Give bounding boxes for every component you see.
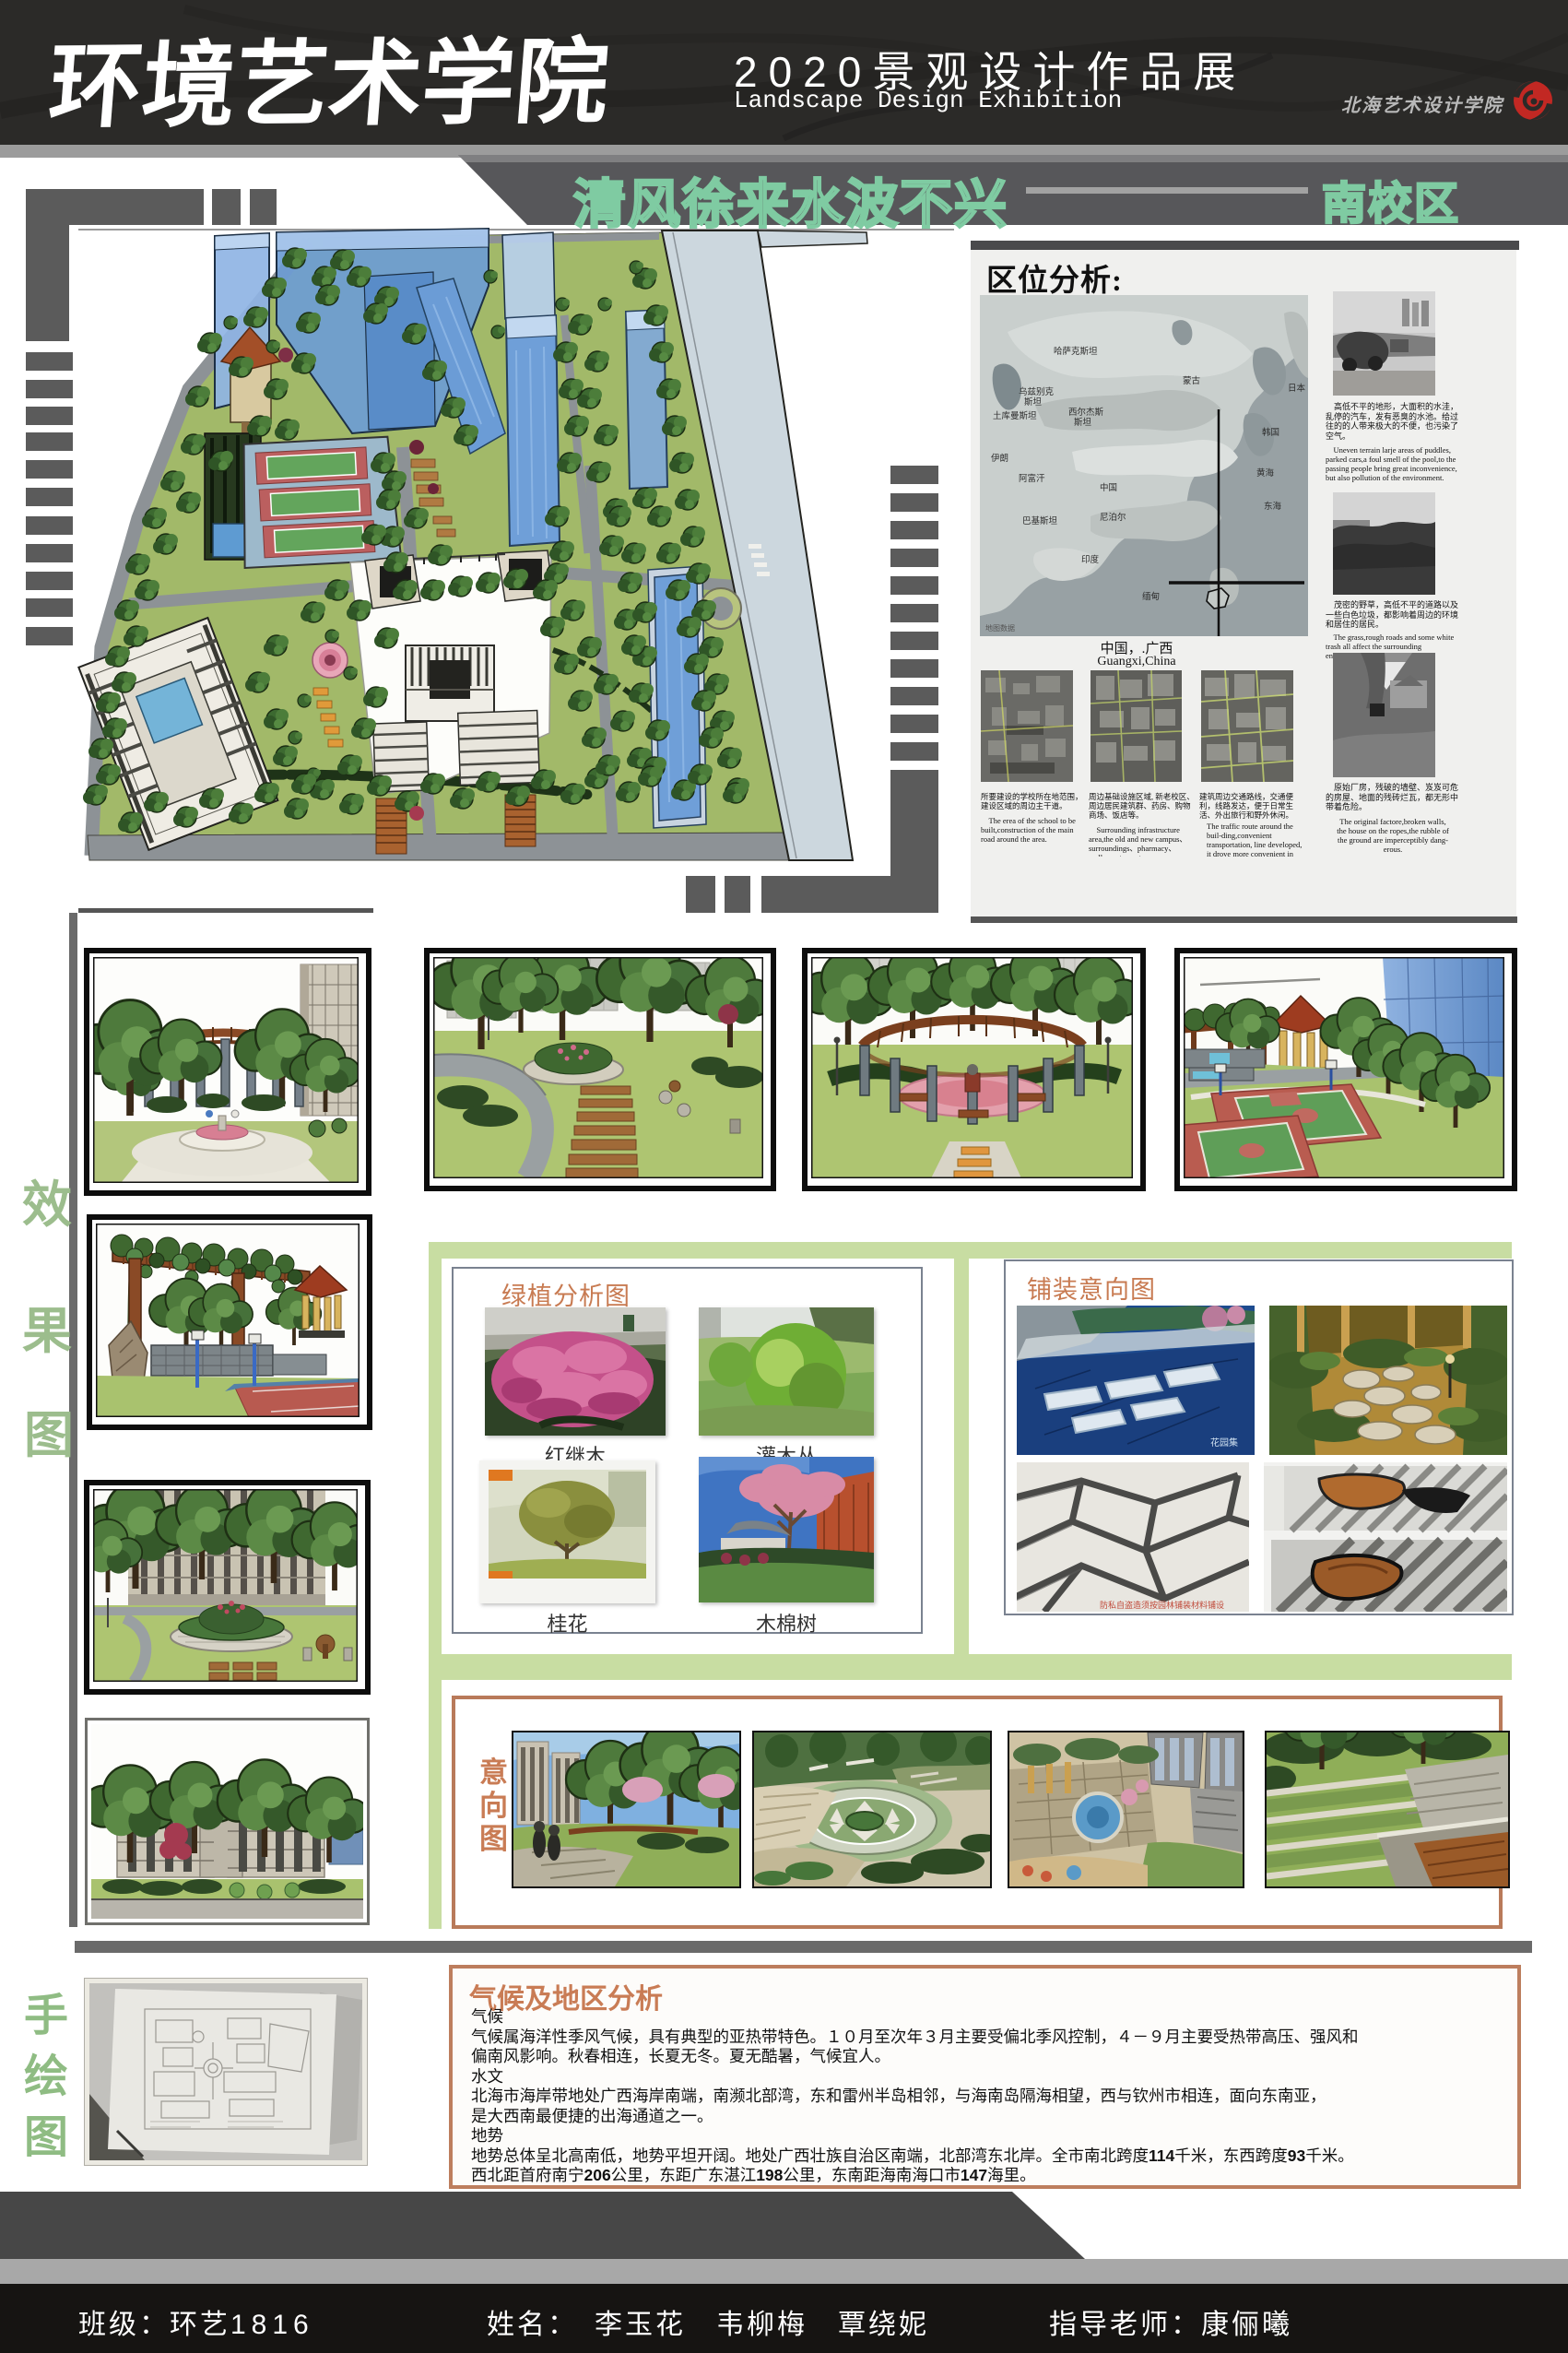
- svg-text:缅甸: 缅甸: [1142, 591, 1160, 602]
- svg-text:斯坦: 斯坦: [1024, 396, 1043, 408]
- svg-text:花园集: 花园集: [1210, 1437, 1238, 1448]
- svg-text:防私自盗造须按园林铺装材料铺设: 防私自盗造须按园林铺装材料铺设: [1100, 1600, 1224, 1610]
- svg-text:印度: 印度: [1081, 554, 1100, 565]
- svg-text:日本: 日本: [1288, 383, 1306, 394]
- svg-text:伊朗: 伊朗: [991, 453, 1008, 464]
- svg-text:中国: 中国: [1100, 482, 1117, 493]
- svg-text:地图数据: 地图数据: [985, 623, 1015, 633]
- svg-text:土库曼斯坦: 土库曼斯坦: [993, 410, 1037, 421]
- svg-text:尼泊尔: 尼泊尔: [1100, 512, 1126, 523]
- svg-text:黄海: 黄海: [1256, 467, 1275, 479]
- svg-text:阿富汗: 阿富汗: [1019, 473, 1045, 484]
- svg-text:巴基斯坦: 巴基斯坦: [1022, 515, 1058, 526]
- svg-text:韩国: 韩国: [1262, 427, 1279, 438]
- svg-text:斯坦: 斯坦: [1074, 417, 1092, 428]
- svg-text:西尔杰斯: 西尔杰斯: [1068, 407, 1104, 418]
- svg-text:乌兹别克: 乌兹别克: [1019, 386, 1055, 397]
- svg-text:蒙古: 蒙古: [1183, 375, 1201, 386]
- svg-text:哈萨克斯坦: 哈萨克斯坦: [1054, 346, 1098, 357]
- svg-text:东海: 东海: [1264, 501, 1282, 512]
